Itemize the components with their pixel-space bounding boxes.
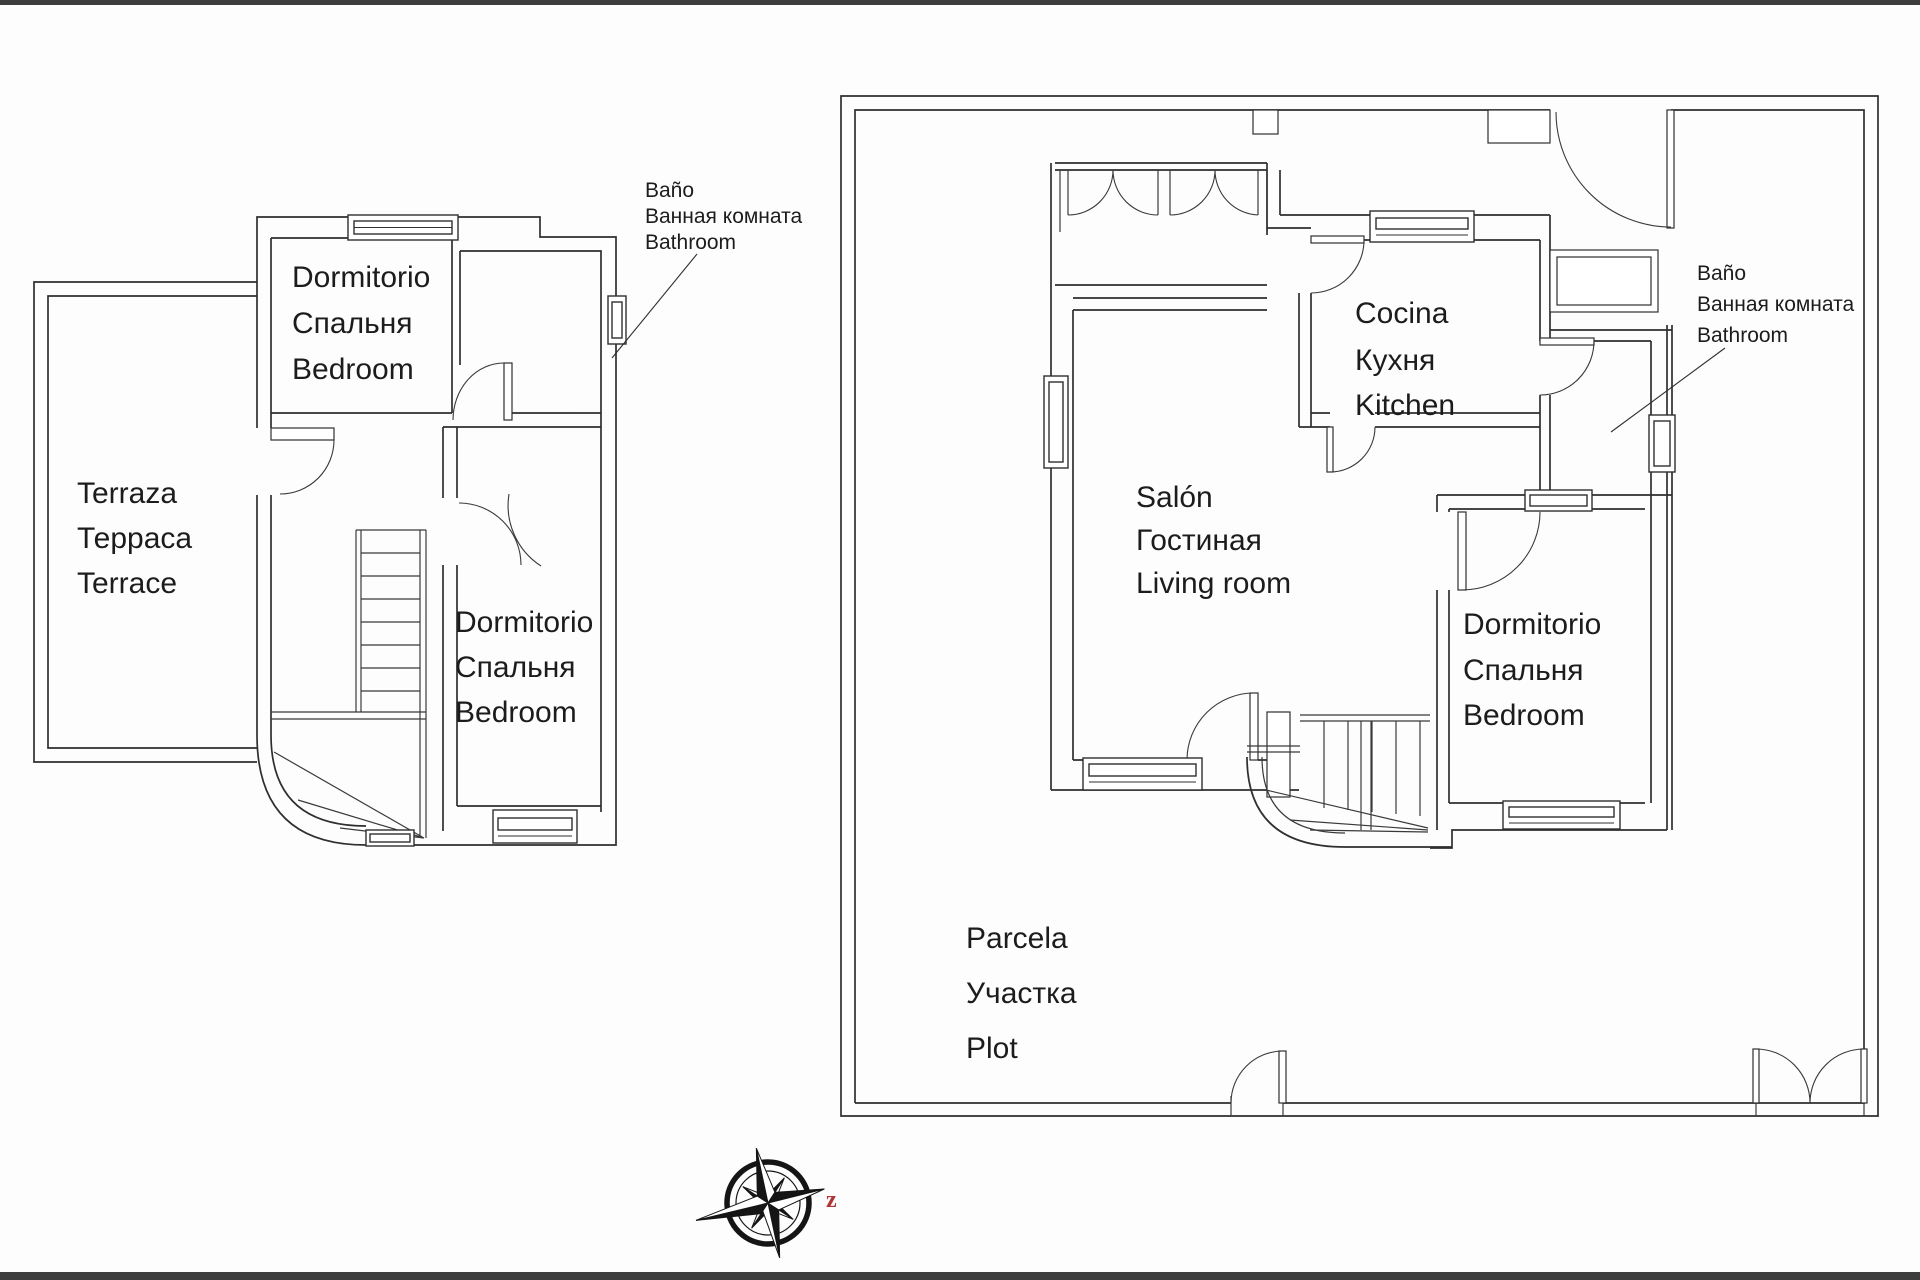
living-room-label-es: Salón [1136, 481, 1213, 514]
living-room-bottom-window [1083, 758, 1202, 790]
living-room-label-ru: Гостиная [1136, 524, 1262, 557]
terrace-label-ru: Терраса [77, 522, 192, 555]
left-bedroom-bottom-door [459, 503, 521, 565]
right-bedroom-door [1458, 512, 1540, 590]
plot-label-ru: Участка [966, 977, 1077, 1010]
label-left-bedroom-bottom: Dormitorio Спальня Bedroom [455, 606, 593, 729]
right-bedroom-bottom-window [1503, 801, 1620, 829]
left-bedroom-bottom-label-en: Bedroom [455, 696, 577, 729]
kitchen-window [1370, 211, 1474, 242]
label-kitchen: Cocina Кухня Kitchen [1355, 297, 1455, 422]
left-stairs [271, 530, 426, 838]
kitchen-hall-door [1327, 427, 1375, 472]
left-bathroom-label-es: Baño [645, 179, 694, 202]
left-bathroom-label-ru: Ванная комната [645, 205, 803, 228]
left-bedroom-bottom-window [493, 810, 577, 843]
plot-bottom-gate-door [1231, 1051, 1286, 1103]
compass-rose: z [684, 1136, 837, 1273]
right-bedroom-label-ru: Спальня [1463, 654, 1584, 687]
terrace-door [271, 428, 334, 494]
living-room-label-en: Living room [1136, 567, 1291, 600]
plot-boundary [841, 96, 1878, 1116]
kitchen-label-es: Cocina [1355, 297, 1449, 330]
terrace-label-en: Terrace [77, 567, 177, 600]
right-plan: Cocina Кухня Kitchen Salón Гостиная Livi… [841, 96, 1878, 1116]
label-left-bedroom-top: Dormitorio Спальня Bedroom [292, 261, 430, 386]
left-bathroom-label-en: Bathroom [645, 231, 736, 254]
plot-gate-pier-large [1488, 110, 1550, 143]
left-bedroom-top-label-ru: Спальня [292, 307, 413, 340]
plot-double-gate [1753, 1049, 1867, 1103]
right-bedroom-label-es: Dormitorio [1463, 608, 1601, 641]
left-understairs-window [366, 830, 414, 846]
label-plot: Parcela Участка Plot [966, 922, 1077, 1065]
right-bedroom-top-window [1525, 490, 1592, 511]
plot-label-en: Plot [966, 1032, 1018, 1065]
right-bathroom-label-en: Bathroom [1697, 324, 1788, 347]
left-bedroom-bottom-label-es: Dormitorio [455, 606, 593, 639]
kitchen-label-en: Kitchen [1355, 389, 1455, 422]
compass-east-letter: z [826, 1187, 837, 1213]
label-living-room: Salón Гостиная Living room [1136, 481, 1291, 600]
left-bedroom-top-door [453, 363, 512, 420]
floor-plan-canvas: Dormitorio Спальня Bedroom Terraza Терра… [0, 0, 1920, 1280]
left-bedroom-top-window [348, 215, 458, 240]
label-left-bathroom: Baño Ванная комната Bathroom [612, 179, 803, 358]
right-bedroom-label-en: Bedroom [1463, 699, 1585, 732]
kitchen-entry-door [1311, 236, 1364, 293]
left-bedroom-bottom-label-ru: Спальня [455, 651, 576, 684]
left-bedroom-top-label-en: Bedroom [292, 353, 414, 386]
terrace-label-es: Terraza [77, 477, 177, 510]
plot-gate-pier-small [1253, 110, 1278, 134]
right-bathroom-label-es: Baño [1697, 262, 1746, 285]
left-plan: Dormitorio Спальня Bedroom Terraza Терра… [34, 179, 803, 846]
compass-star [684, 1136, 836, 1273]
entry-closet [1550, 250, 1658, 312]
kitchen-label-ru: Кухня [1355, 344, 1435, 377]
plot-label-es: Parcela [966, 922, 1068, 955]
living-room-door [1187, 693, 1258, 760]
entrance-double-doors [1051, 163, 1311, 298]
plot-top-gate-door [1556, 110, 1674, 228]
label-terrace: Terraza Терраса Terrace [77, 477, 192, 600]
left-bathroom-window [608, 296, 626, 344]
right-stairs [1247, 712, 1452, 847]
living-room-side-window [1044, 376, 1068, 468]
floor-plan-document: Dormitorio Спальня Bedroom Terraza Терра… [0, 0, 1920, 1280]
label-right-bedroom: Dormitorio Спальня Bedroom [1463, 608, 1601, 732]
left-bedroom-top-label-es: Dormitorio [292, 261, 430, 294]
right-bathroom-window [1649, 415, 1675, 472]
right-bathroom-label-ru: Ванная комната [1697, 293, 1855, 316]
right-bathroom-door [1540, 338, 1594, 395]
left-landing-door [508, 494, 541, 566]
